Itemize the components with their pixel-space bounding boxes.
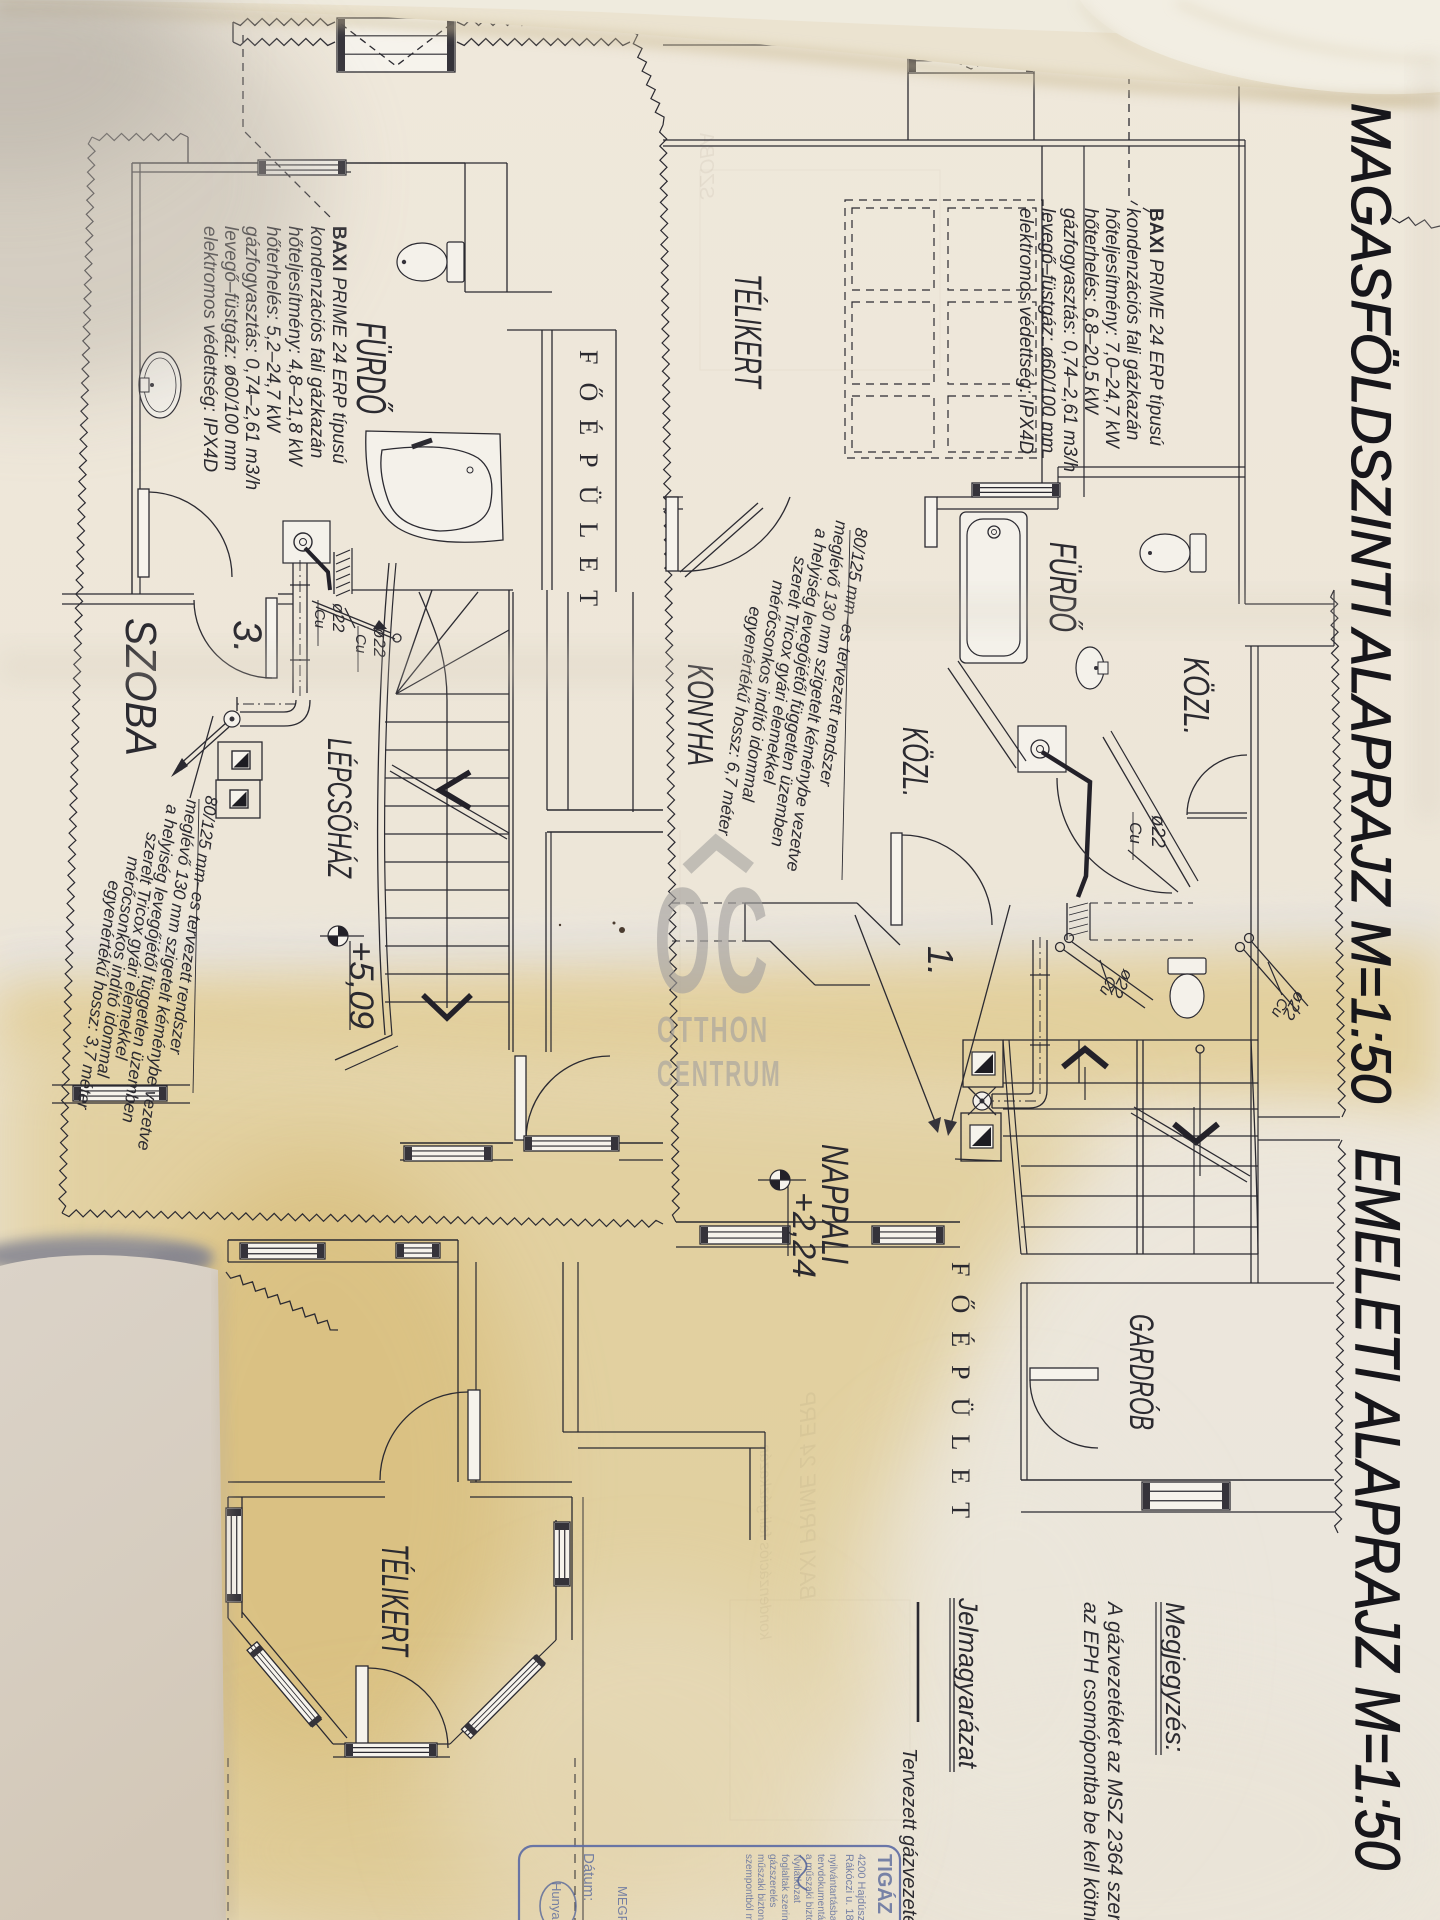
svg-text:Tervezett gázvezeték: Tervezett gázvezeték — [898, 1748, 920, 1920]
svg-text:MEGFELELŐ: MEGFELELŐ — [615, 1886, 630, 1920]
svg-text:a műszaki biztonsági: a műszaki biztonsági — [803, 1854, 814, 1920]
svg-text:EMELETI ALAPRAJZ M=1:50: EMELETI ALAPRAJZ M=1:50 — [1342, 1148, 1412, 1870]
svg-text:hőteljesítmény: 7,0–24,7 kW: hőteljesítmény: 7,0–24,7 kW — [1101, 208, 1122, 450]
svg-text:LÉPCSŐHÁZ: LÉPCSŐHÁZ — [320, 738, 358, 879]
svg-text:TIGÁZ ZRt.: TIGÁZ ZRt. — [873, 1854, 896, 1920]
svg-text:TÉLIKERT: TÉLIKERT — [373, 1544, 416, 1658]
svg-text:ø22: ø22 — [1147, 815, 1168, 848]
svg-text:FÜRDŐ: FÜRDŐ — [348, 322, 395, 414]
svg-text:Rákóczi u. 184.: Rákóczi u. 184. — [843, 1854, 855, 1920]
svg-text:KÖZL.: KÖZL. — [1176, 657, 1217, 735]
svg-text:1.: 1. — [920, 946, 961, 976]
svg-text:4200 Hajdúszoboszló: 4200 Hajdúszoboszló — [855, 1854, 867, 1920]
svg-text:elektromos védettség: IPX4D: elektromos védettség: IPX4D — [1015, 208, 1036, 454]
svg-text:nyilvántartásba vétel nem jele: nyilvántartásba vétel nem jelenti a — [827, 1854, 838, 1920]
svg-text:CENTRUM: CENTRUM — [657, 1055, 782, 1095]
svg-text:Cu: Cu — [1126, 822, 1145, 844]
svg-text:tervdokumentációban: tervdokumentációban — [815, 1854, 826, 1920]
svg-text:+5,09: +5,09 — [342, 941, 380, 1029]
svg-text:OC: OC — [654, 857, 772, 1025]
svg-text:BAXI PRIME 24 ERP típusú: BAXI PRIME 24 ERP típusú — [1145, 208, 1166, 446]
svg-text:gázfogyasztás: 0,74–2,61 m3/h: gázfogyasztás: 0,74–2,61 m3/h — [1059, 208, 1080, 472]
svg-text:Hunyadi: Hunyadi — [549, 1882, 564, 1920]
svg-text:3.: 3. — [225, 620, 269, 653]
svg-text:szempontból megfelel: szempontból megfelel — [743, 1854, 754, 1920]
svg-text:kondenzációs fali gázkazán: kondenzációs fali gázkazán — [1122, 208, 1143, 440]
svg-text:kondenzációs fali gázkazán: kondenzációs fali gázkazán — [306, 226, 327, 458]
svg-text:MAGASFÖLDSZINTI ALAPRAJZ M=1: MAGASFÖLDSZINTI ALAPRAJZ M=1:50 — [1340, 103, 1403, 1103]
svg-text:FŐÉPÜLET: FŐÉPÜLET — [574, 350, 603, 624]
svg-text:SZOBA: SZOBA — [116, 618, 165, 756]
svg-text:NAPPALI: NAPPALI — [813, 1144, 855, 1264]
svg-text:Jelmagyarázat: Jelmagyarázat — [953, 1597, 983, 1769]
svg-text:ø22: ø22 — [329, 603, 348, 633]
svg-text:Cu: Cu — [311, 609, 328, 629]
svg-text:az EPH csomópontba be kell köt: az EPH csomópontba be kell kötni! — [1079, 1602, 1102, 1920]
svg-text:KÖZL.: KÖZL. — [895, 727, 936, 797]
svg-text:levegő–füstgáz: ø60/100 mm: levegő–füstgáz: ø60/100 mm — [1037, 208, 1058, 453]
svg-text:SZOBA: SZOBA — [695, 132, 717, 200]
svg-text:műszaki biztonsági szempontból: műszaki biztonsági szempontból — [755, 1854, 766, 1920]
svg-text:gázszerelés: gázszerelés — [767, 1854, 778, 1907]
svg-text:TÉLIKERT: TÉLIKERT — [726, 274, 769, 390]
svg-text:Megjegyzés:: Megjegyzés: — [1160, 1602, 1190, 1752]
svg-text:Nyilatkozat: Nyilatkozat — [791, 1854, 802, 1903]
svg-text:hőterhelés: 6,8–20,5 kW: hőterhelés: 6,8–20,5 kW — [1080, 208, 1101, 416]
svg-text:GARDRÓB: GARDRÓB — [1122, 1314, 1160, 1430]
svg-text:A gázvezetéket az MSZ 2364 sze: A gázvezetéket az MSZ 2364 szerint — [1103, 1600, 1126, 1920]
svg-text:OTTHON: OTTHON — [657, 1010, 769, 1050]
svg-text:BAXI PRIME 24 ERP: BAXI PRIME 24 ERP — [795, 1392, 820, 1600]
svg-text:FŐÉPÜLET: FŐÉPÜLET — [946, 1262, 975, 1536]
svg-text:foglaltak szerint: foglaltak szerint — [779, 1854, 790, 1920]
svg-text:Dátum:: Dátum: — [580, 1853, 597, 1901]
svg-text:BAXI PRIME 24 ERP típusú: BAXI PRIME 24 ERP típusú — [328, 226, 349, 464]
